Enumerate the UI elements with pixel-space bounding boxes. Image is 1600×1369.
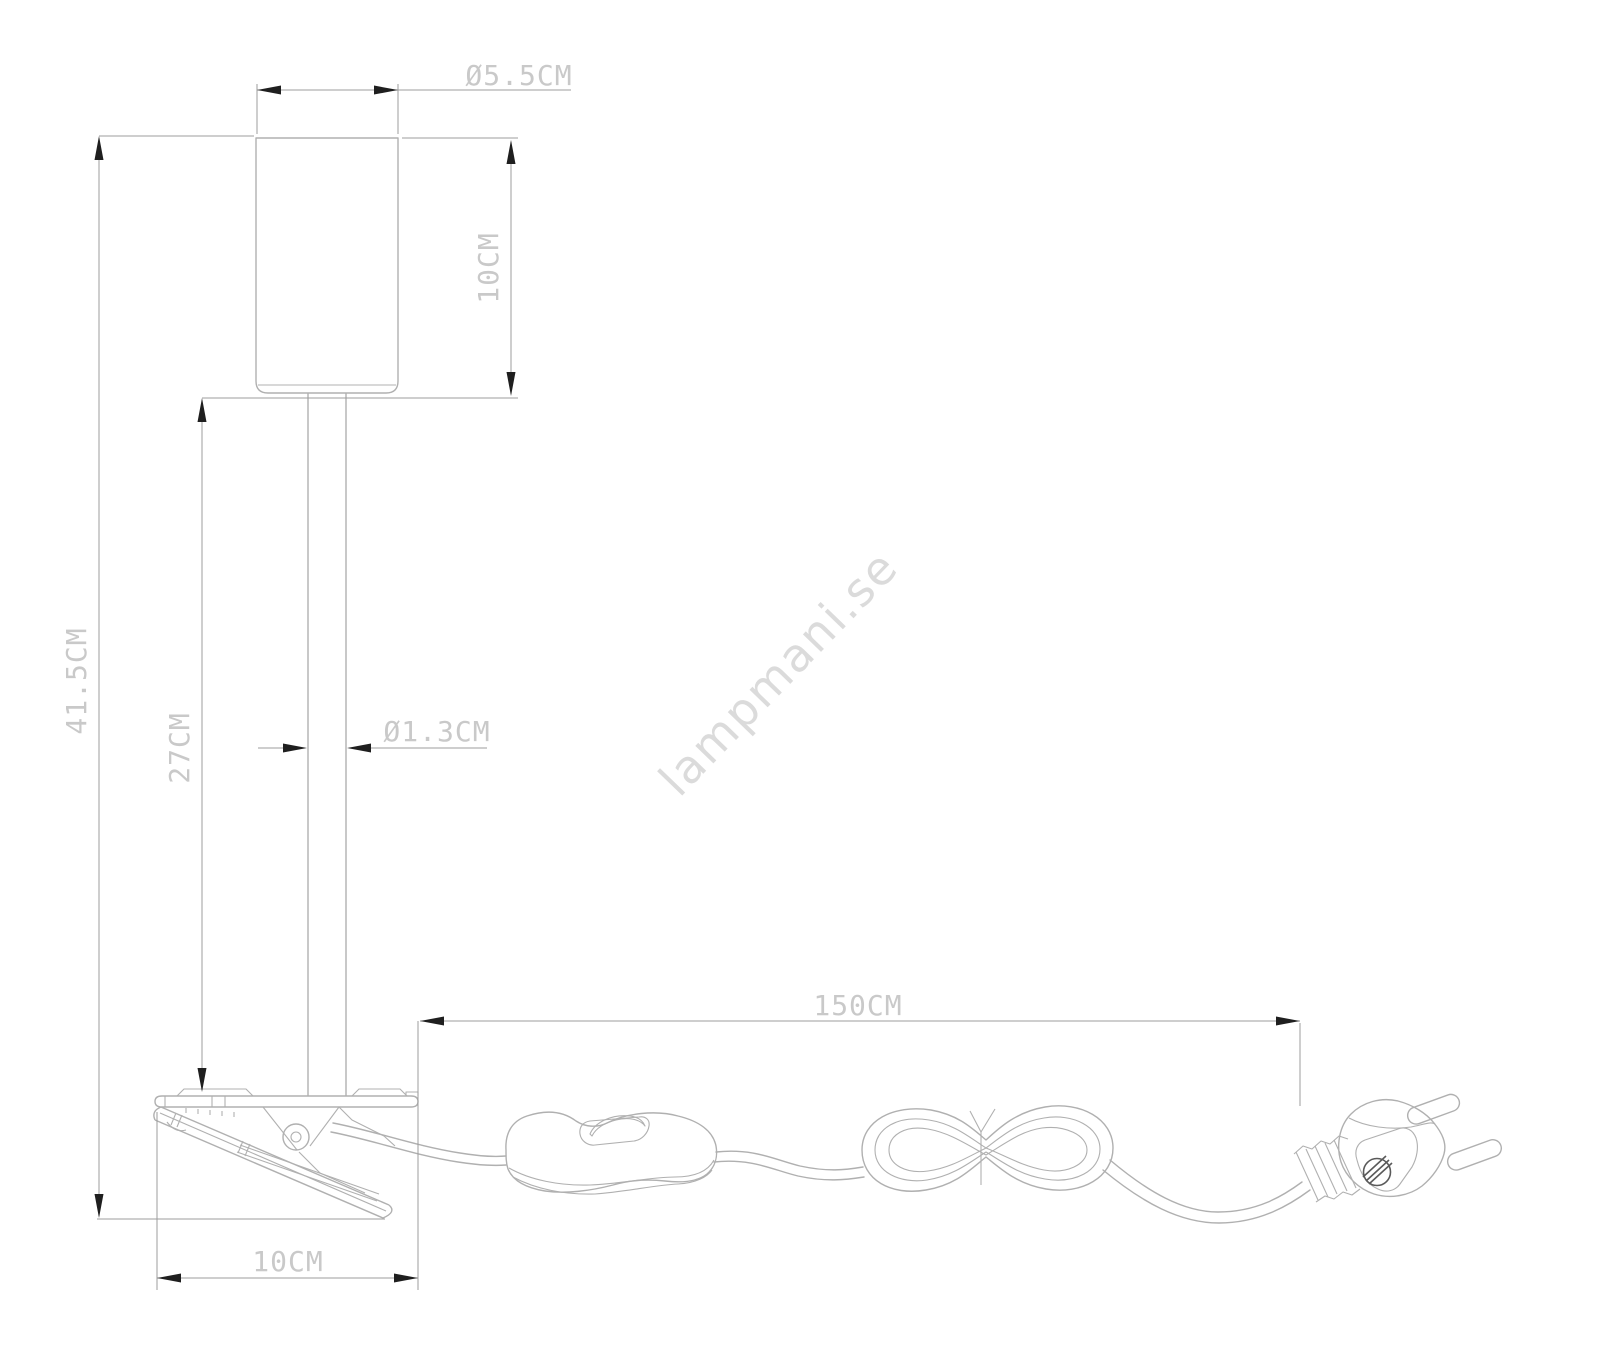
technical-drawing-page: Ø5.5CM 10CM 41.5CM 27CM Ø1.3 (0, 0, 1600, 1369)
arrow-right-icon (283, 744, 307, 753)
stem-height-label: 27CM (163, 712, 196, 783)
lamp-stem (308, 393, 346, 1096)
arrow-right-icon (1276, 1017, 1300, 1026)
dim-shade-diameter: Ø5.5CM (257, 59, 573, 134)
inline-switch (506, 1112, 717, 1194)
lamp-drawing (154, 138, 1504, 1223)
arrow-down-icon (507, 372, 516, 396)
arrow-left-icon (257, 86, 281, 95)
dim-stem-diameter: Ø1.3CM (258, 715, 491, 753)
clamp-width-label: 10CM (252, 1245, 323, 1278)
cable-length-label: 150CM (813, 989, 902, 1022)
shade-height-label: 10CM (472, 232, 505, 303)
clamp-lamp-dimension-drawing: Ø5.5CM 10CM 41.5CM 27CM Ø1.3 (0, 0, 1600, 1369)
arrow-left-icon (347, 744, 371, 753)
switch-rocker (580, 1116, 649, 1145)
arrow-down-icon (95, 1194, 104, 1218)
plug-cord-grip (1294, 1136, 1360, 1202)
cable-coil (862, 1106, 1113, 1191)
clamp-pad-left (177, 1089, 253, 1096)
arrow-up-icon (95, 136, 104, 160)
arrow-right-icon (374, 86, 398, 95)
dim-overall-height: 41.5CM (60, 136, 385, 1219)
clamp-base (154, 1089, 506, 1218)
cord-coil-to-plug (1103, 1160, 1310, 1223)
arrow-left-icon (157, 1274, 181, 1283)
arrow-right-icon (394, 1274, 418, 1283)
clamp-jaw (154, 1107, 392, 1218)
dimensions: Ø5.5CM 10CM 41.5CM 27CM Ø1.3 (60, 59, 1300, 1290)
clamp-pivot (263, 1107, 395, 1193)
arrow-up-icon (198, 398, 207, 422)
arrow-left-icon (420, 1017, 444, 1026)
plug-pins (1405, 1092, 1503, 1172)
arrow-down-icon (198, 1068, 207, 1092)
arrow-up-icon (507, 140, 516, 164)
clamp-pad-right (352, 1089, 407, 1096)
watermark-text: lampmani.se (648, 539, 908, 806)
dim-shade-height: 10CM (402, 138, 518, 396)
stem-diameter-label: Ø1.3CM (383, 715, 490, 748)
plug-screw (1363, 1156, 1392, 1186)
cord-switch-to-coil (714, 1151, 864, 1180)
power-plug (1294, 1092, 1504, 1202)
shade-diameter-label: Ø5.5CM (465, 59, 572, 92)
dim-cable-length: 150CM (418, 989, 1300, 1290)
lamp-shade (256, 138, 398, 393)
clamp-cable (333, 1123, 506, 1156)
overall-height-label: 41.5CM (60, 627, 93, 734)
cable-tie (970, 1109, 995, 1185)
